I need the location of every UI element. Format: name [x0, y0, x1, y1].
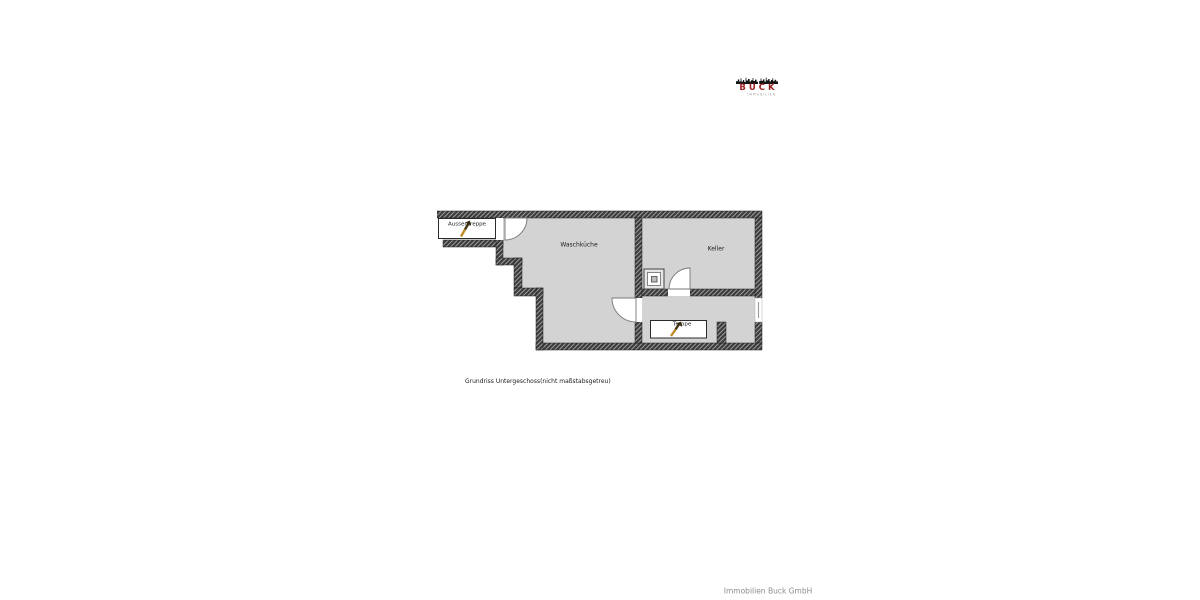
wall-top	[437, 211, 762, 218]
floor-waschkueche	[503, 218, 635, 343]
plan-caption: Grundriss Untergeschoss(nicht maßstabsge…	[465, 378, 611, 386]
floorplan-drawing	[437, 210, 763, 352]
company-logo: BUCK IMMOBILIEN	[734, 75, 780, 101]
page: { "logo": { "brand": "BUCK", "subtitle":…	[0, 0, 1200, 600]
label-keller: Keller	[708, 246, 725, 253]
window-right-wall	[755, 298, 762, 322]
wall-right-upper	[755, 218, 762, 298]
wall-keller-bottom-left	[642, 289, 668, 296]
label-aussentreppe: Aussentreppe	[448, 222, 486, 229]
wall-divider-lower	[635, 322, 642, 343]
opening-keller-door	[668, 289, 690, 296]
wall-keller-bottom-right	[690, 289, 755, 296]
wall-left-step-c	[514, 258, 522, 288]
wall-stub-corridor	[717, 322, 726, 343]
label-treppe: Treppe	[673, 322, 691, 329]
wall-under-stairbox	[443, 240, 503, 247]
footer-company-name: Immobilien Buck GmbH	[724, 587, 812, 596]
wall-right-lower	[755, 322, 762, 343]
chimney-fixture-icon	[644, 269, 664, 289]
wall-divider-upper	[635, 218, 642, 298]
wall-bottom	[536, 343, 762, 350]
logo-subtitle-text: IMMOBILIEN	[747, 93, 766, 96]
wall-left-step-e	[536, 288, 543, 350]
opening-aussentreppe-door	[496, 218, 503, 240]
label-waschkueche: Waschküche	[560, 242, 597, 249]
